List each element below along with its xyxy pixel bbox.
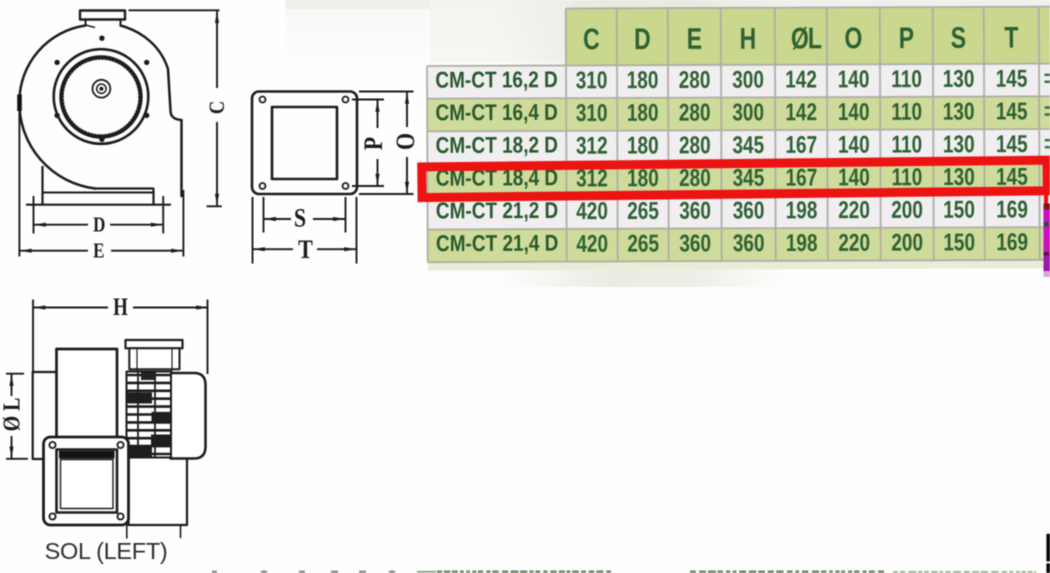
svg-text:280: 280 [679,66,711,94]
svg-text:145: 145 [996,64,1028,92]
svg-text:E: E [93,240,104,263]
svg-text:D: D [634,22,651,56]
svg-text:360: 360 [679,229,711,257]
svg-text:310: 310 [576,99,608,127]
svg-text:O: O [844,21,862,55]
svg-text:130: 130 [943,97,975,125]
svg-text:360: 360 [733,196,765,224]
svg-text:145: 145 [996,162,1028,190]
svg-text:Ø L: Ø L [0,398,25,432]
svg-text:S: S [951,21,966,55]
svg-text:420: 420 [576,229,608,257]
svg-text:145: 145 [996,130,1028,158]
svg-text:150: 150 [943,195,975,223]
svg-text:CM-CT 18,2 D: CM-CT 18,2 D [436,133,558,158]
svg-text:ØL: ØL [791,21,822,55]
svg-text:110: 110 [891,65,922,93]
svg-text:300: 300 [732,65,764,93]
svg-text:140: 140 [838,163,870,191]
svg-text:D: D [93,214,105,237]
svg-text:E: E [687,22,702,56]
svg-text:130: 130 [943,65,975,93]
svg-text:O: O [391,133,420,150]
svg-text:145: 145 [996,97,1028,125]
svg-text:198: 198 [786,196,818,224]
svg-text:H: H [113,292,128,320]
svg-text:H: H [740,22,757,56]
svg-text:300: 300 [732,98,764,126]
svg-text:167: 167 [785,131,817,159]
svg-text:CM-CT 16,2 D: CM-CT 16,2 D [435,68,557,93]
svg-text:142: 142 [785,65,817,93]
svg-text:280: 280 [679,98,711,126]
svg-text:T: T [1004,21,1018,55]
svg-text:CM-CT 21,2 D: CM-CT 21,2 D [436,198,558,223]
svg-text:360: 360 [733,229,765,257]
svg-text:169: 169 [996,228,1028,256]
svg-text:T: T [298,235,313,264]
svg-text:P: P [899,21,914,55]
svg-text:310: 310 [576,66,608,94]
svg-text:130: 130 [943,130,975,158]
svg-text:200: 200 [891,196,923,224]
svg-text:110: 110 [891,130,922,158]
svg-text:140: 140 [838,130,870,158]
svg-text:180: 180 [627,98,659,126]
svg-text:420: 420 [576,197,608,225]
svg-text:CM-CT 21,4 D: CM-CT 21,4 D [436,231,558,256]
svg-text:142: 142 [785,98,817,126]
svg-text:180: 180 [627,131,659,159]
svg-text:SOL (LEFT): SOL (LEFT) [45,538,168,564]
svg-text:265: 265 [627,229,659,257]
svg-text:198: 198 [786,229,818,257]
svg-text:P: P [359,137,388,151]
svg-text:110: 110 [892,163,923,191]
svg-text:CM-CT 16,4 D: CM-CT 16,4 D [435,100,557,125]
svg-text:265: 265 [627,197,659,225]
svg-text:140: 140 [838,65,870,93]
svg-text:140: 140 [838,98,870,126]
svg-text:150: 150 [943,228,975,256]
svg-text:110: 110 [891,97,922,125]
svg-text:C: C [205,101,229,114]
svg-text:130: 130 [943,163,975,191]
svg-text:312: 312 [576,131,608,159]
svg-text:180: 180 [627,66,659,94]
svg-text:200: 200 [891,228,923,256]
svg-text:169: 169 [996,195,1028,223]
svg-text:S: S [294,204,306,233]
svg-text:220: 220 [838,228,870,256]
svg-text:220: 220 [838,196,870,224]
svg-text:360: 360 [679,196,711,224]
svg-text:280: 280 [679,131,711,159]
svg-text:345: 345 [732,131,764,159]
svg-text:C: C [583,22,600,56]
